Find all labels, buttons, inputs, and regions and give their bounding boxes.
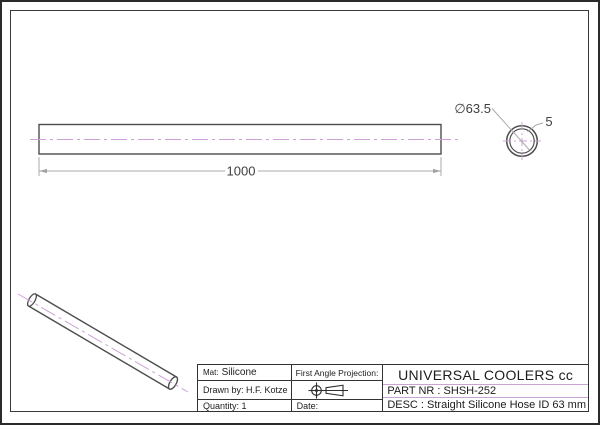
title-block-middle-column: First Angle Projection: Date: — [292, 365, 384, 411]
projection-label: First Angle Projection: — [292, 365, 383, 381]
material-label: Mat: — [203, 368, 219, 377]
quantity-cell: Quantity: 1 — [198, 400, 291, 411]
date-cell: Date: — [292, 400, 383, 411]
wall-thickness-dimension: 5 — [528, 114, 553, 132]
diameter-dimension-text: ∅63.5 — [454, 101, 491, 116]
part-number: PART NR : SHSH-252 — [383, 385, 588, 398]
wall-thickness-text: 5 — [545, 114, 552, 129]
drawing-canvas: 1000 ∅63.5 5 — [0, 0, 600, 425]
side-view — [30, 125, 462, 155]
arrowhead-right-icon — [433, 169, 441, 173]
arrowhead-left-icon — [39, 169, 47, 173]
isometric-view — [18, 292, 188, 392]
company-name: UNIVERSAL COOLERS cc — [383, 365, 588, 385]
title-block-left-column: Mat: Silicone Drawn by: H.F. Kotze Quant… — [198, 365, 292, 411]
length-dimension-text: 1000 — [227, 164, 256, 179]
length-dimension: 1000 — [39, 157, 441, 179]
projection-symbol-cell — [292, 381, 383, 400]
part-description: DESC : Straight Silicone Hose ID 63 mm — [383, 398, 588, 411]
title-block: Mat: Silicone Drawn by: H.F. Kotze Quant… — [197, 364, 589, 412]
material-value: Silicone — [222, 367, 257, 378]
material-cell: Mat: Silicone — [198, 365, 291, 381]
drawn-by-cell: Drawn by: H.F. Kotze — [198, 381, 291, 400]
title-block-right-column: UNIVERSAL COOLERS cc PART NR : SHSH-252 … — [383, 365, 588, 411]
